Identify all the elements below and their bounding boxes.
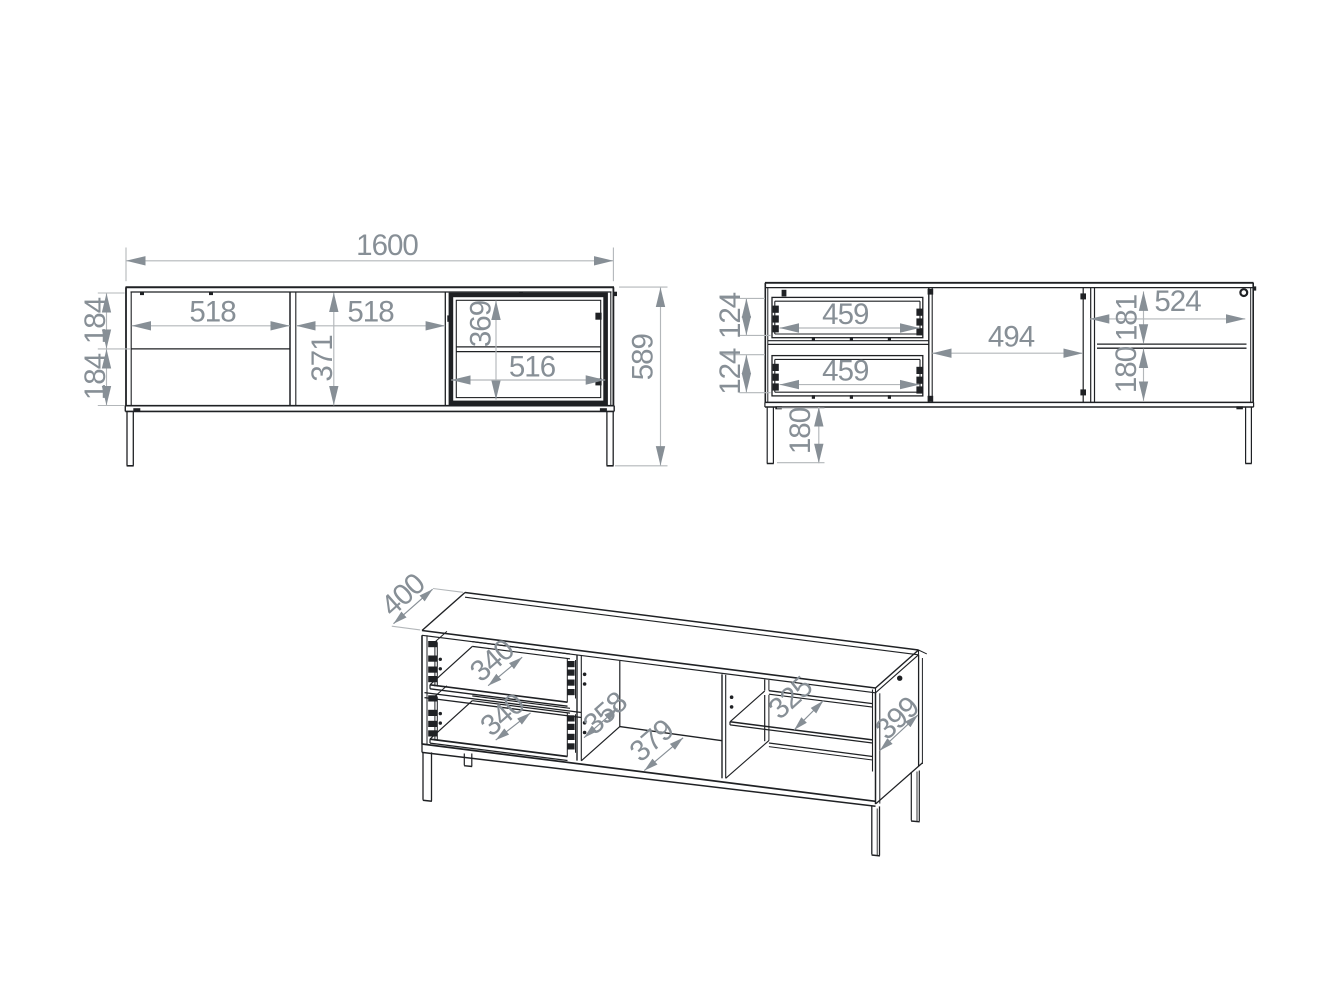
svg-text:184: 184 — [79, 297, 112, 344]
svg-text:369: 369 — [465, 300, 498, 347]
svg-text:459: 459 — [822, 298, 869, 331]
svg-text:371: 371 — [306, 335, 339, 381]
svg-text:1600: 1600 — [356, 229, 418, 262]
svg-text:180: 180 — [1110, 346, 1143, 393]
svg-text:518: 518 — [347, 296, 394, 329]
svg-text:518: 518 — [189, 296, 236, 329]
svg-text:124: 124 — [714, 292, 747, 339]
svg-text:124: 124 — [714, 348, 747, 395]
svg-text:181: 181 — [1111, 295, 1144, 341]
svg-text:494: 494 — [988, 321, 1035, 354]
svg-text:184: 184 — [79, 353, 112, 400]
svg-text:589: 589 — [627, 334, 660, 381]
svg-text:516: 516 — [509, 350, 556, 383]
svg-text:180: 180 — [784, 407, 817, 454]
svg-text:524: 524 — [1154, 285, 1201, 318]
svg-text:459: 459 — [822, 354, 869, 387]
